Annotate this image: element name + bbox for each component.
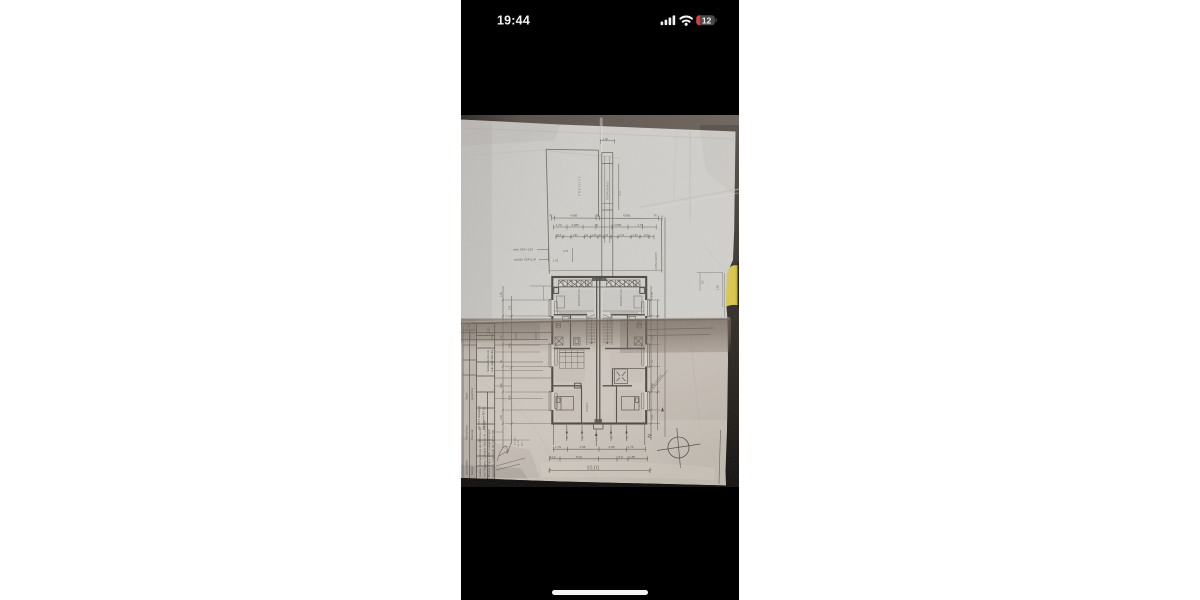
svg-text:19:44: 19:44 [497,14,530,28]
svg-text:12: 12 [702,15,712,25]
